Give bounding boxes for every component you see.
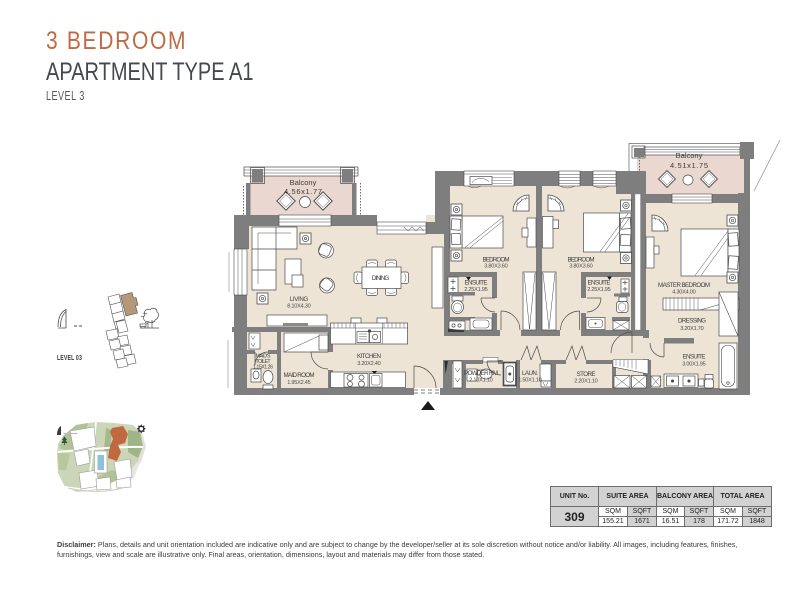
svg-text:4.30X4.00: 4.30X4.00 [672, 290, 696, 296]
svg-text:4.51x1.75: 4.51x1.75 [670, 161, 708, 170]
svg-text:KITCHEN: KITCHEN [357, 353, 381, 360]
svg-text:4.56x1.77: 4.56x1.77 [284, 187, 322, 196]
svg-text:STORE: STORE [577, 371, 596, 378]
svg-text:BEDROOM: BEDROOM [568, 257, 595, 264]
svg-text:DINING: DINING [372, 275, 390, 282]
svg-text:3.20X2.40: 3.20X2.40 [357, 361, 381, 367]
svg-text:2.10X1.10: 2.10X1.10 [469, 378, 493, 384]
svg-text:LIVING: LIVING [290, 296, 309, 303]
svg-text:POWDER RM: POWDER RM [464, 370, 498, 377]
svg-text:ENSUITE: ENSUITE [465, 280, 488, 287]
svg-text:MASTER BEDROOM: MASTER BEDROOM [658, 282, 710, 289]
svg-text:ENSUITE: ENSUITE [588, 280, 611, 287]
svg-text:1.50X1.10: 1.50X1.10 [518, 378, 542, 384]
svg-text:3.20X1.70: 3.20X1.70 [680, 326, 704, 332]
svg-text:DRESSING: DRESSING [678, 318, 706, 325]
svg-text:8.10X4.30: 8.10X4.30 [287, 303, 311, 309]
svg-text:2.25X1.95: 2.25X1.95 [464, 287, 488, 293]
svg-text:3.00X1.95: 3.00X1.95 [682, 362, 706, 368]
svg-text:BEDROOM: BEDROOM [483, 257, 510, 264]
svg-text:3.80X3.60: 3.80X3.60 [569, 264, 593, 270]
svg-text:3.80X3.60: 3.80X3.60 [484, 264, 508, 270]
svg-text:LAUN.: LAUN. [522, 370, 538, 377]
svg-text:2.25X1.95: 2.25X1.95 [587, 287, 611, 293]
svg-text:1.15X1.26: 1.15X1.26 [253, 365, 273, 371]
svg-text:Balcony: Balcony [290, 178, 317, 187]
svg-text:1.95X2.45: 1.95X2.45 [287, 380, 311, 386]
svg-text:2.20X1.10: 2.20X1.10 [574, 379, 598, 385]
svg-text:ENSUITE: ENSUITE [683, 354, 706, 361]
svg-text:MAID ROOM: MAID ROOM [284, 372, 315, 379]
svg-text:Balcony: Balcony [676, 151, 703, 160]
